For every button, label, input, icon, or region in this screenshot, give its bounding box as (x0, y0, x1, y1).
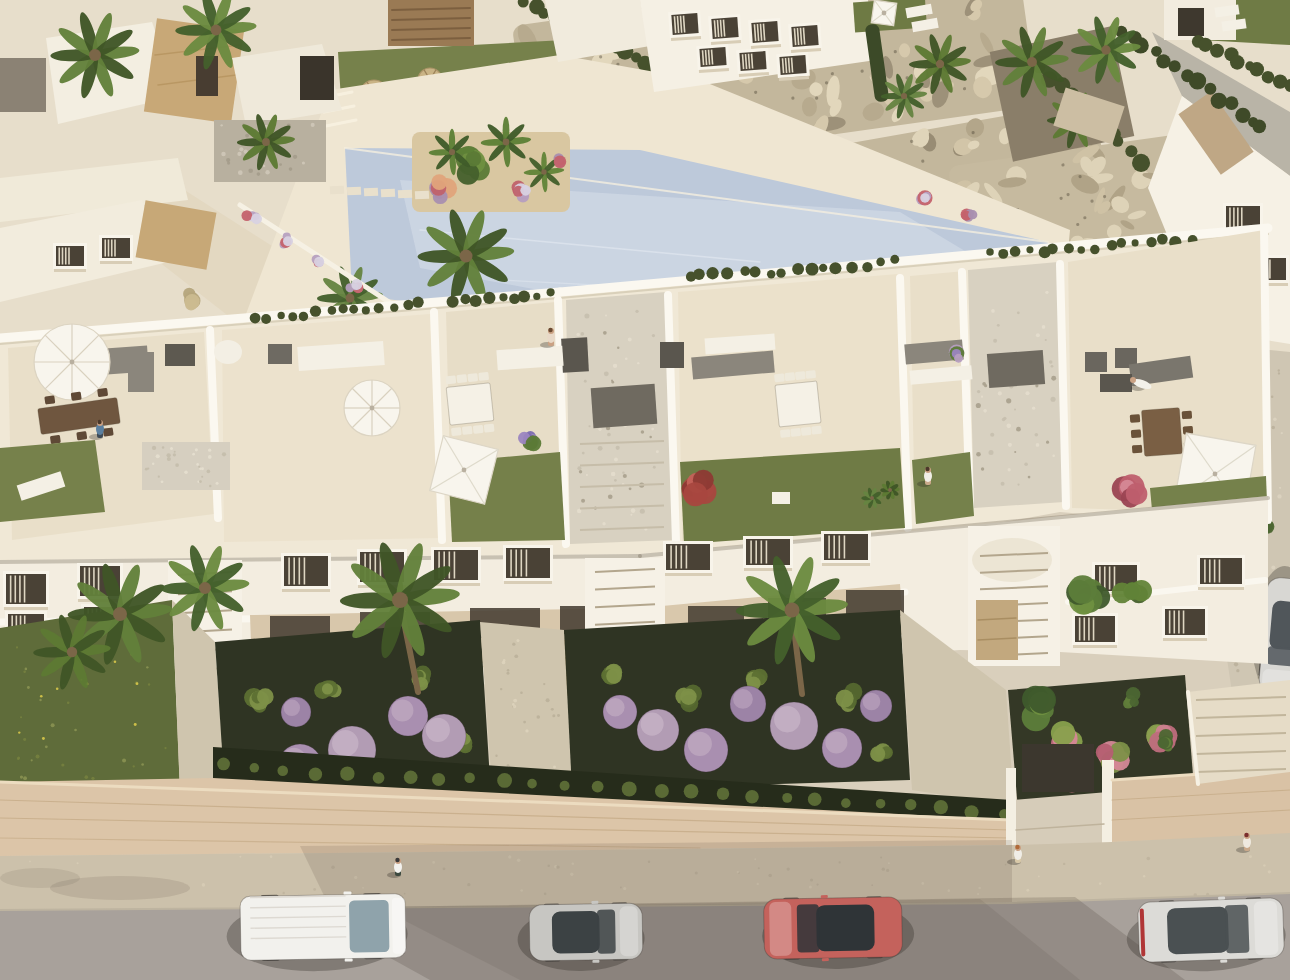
lavender-ball (770, 702, 818, 750)
terrace-chair (772, 492, 790, 504)
render-canvas (0, 0, 1290, 980)
roof-structure-opening (1178, 8, 1204, 36)
facade-window (743, 536, 793, 571)
stepping-stone (364, 188, 378, 197)
facade-window (1162, 606, 1208, 641)
court-slab (987, 350, 1045, 388)
stepping-stone (381, 189, 395, 198)
stepping-stone (330, 186, 344, 195)
lounge-armchair (1085, 352, 1107, 372)
neighbor-window (748, 18, 782, 49)
white-parasol (34, 324, 110, 400)
lavender-ball (422, 714, 466, 758)
neighbor-window (668, 10, 702, 41)
lavender-ball (637, 709, 679, 751)
facade-window (503, 545, 553, 584)
villa-b-stone (136, 200, 217, 270)
facade-window (1072, 613, 1118, 648)
coffee-table (1100, 374, 1132, 392)
neighbor-window (736, 48, 770, 77)
porch-opening (300, 56, 334, 100)
neighbor-window (788, 22, 822, 53)
terrace-lawn (912, 452, 974, 524)
rooftop-parasol (871, 0, 897, 26)
lavender-ball (860, 690, 892, 722)
facade-window (281, 553, 331, 592)
stepping-stone (398, 190, 412, 199)
facade-window (663, 541, 713, 576)
stepping-stone (347, 187, 361, 196)
lavender-ball (730, 686, 766, 722)
stepping-stone (415, 191, 429, 200)
facade-window (821, 531, 871, 566)
aerial-architectural-render (0, 0, 1290, 980)
neighbor-window (776, 52, 810, 81)
gate-opening (1022, 744, 1094, 792)
villa-dark-roof (0, 58, 46, 112)
vent-box (660, 342, 684, 368)
white-parasol (344, 380, 400, 436)
storage-box (165, 344, 195, 366)
lavender-ball (684, 728, 728, 772)
storage-box (268, 344, 292, 364)
garden-path (480, 622, 572, 790)
court-slab (591, 384, 658, 428)
lavender-ball (822, 728, 862, 768)
lavender-ball (281, 697, 311, 727)
facade-window (3, 571, 49, 610)
villa-b-window (99, 235, 133, 264)
building-shadow-sidewalk (300, 840, 1012, 908)
villa-b-window (53, 243, 87, 272)
lavender-ball (603, 695, 637, 729)
stone-accent (976, 600, 1018, 660)
stair-curve (972, 538, 1052, 582)
outdoor-sofa (128, 352, 154, 392)
lavender-ball (388, 696, 428, 736)
round-daybed (214, 340, 242, 364)
neighbor-window (696, 44, 730, 73)
vent-box (561, 337, 589, 372)
tree-shadow (0, 868, 80, 888)
neighbor-window (708, 14, 742, 45)
facade-window (1197, 555, 1245, 590)
